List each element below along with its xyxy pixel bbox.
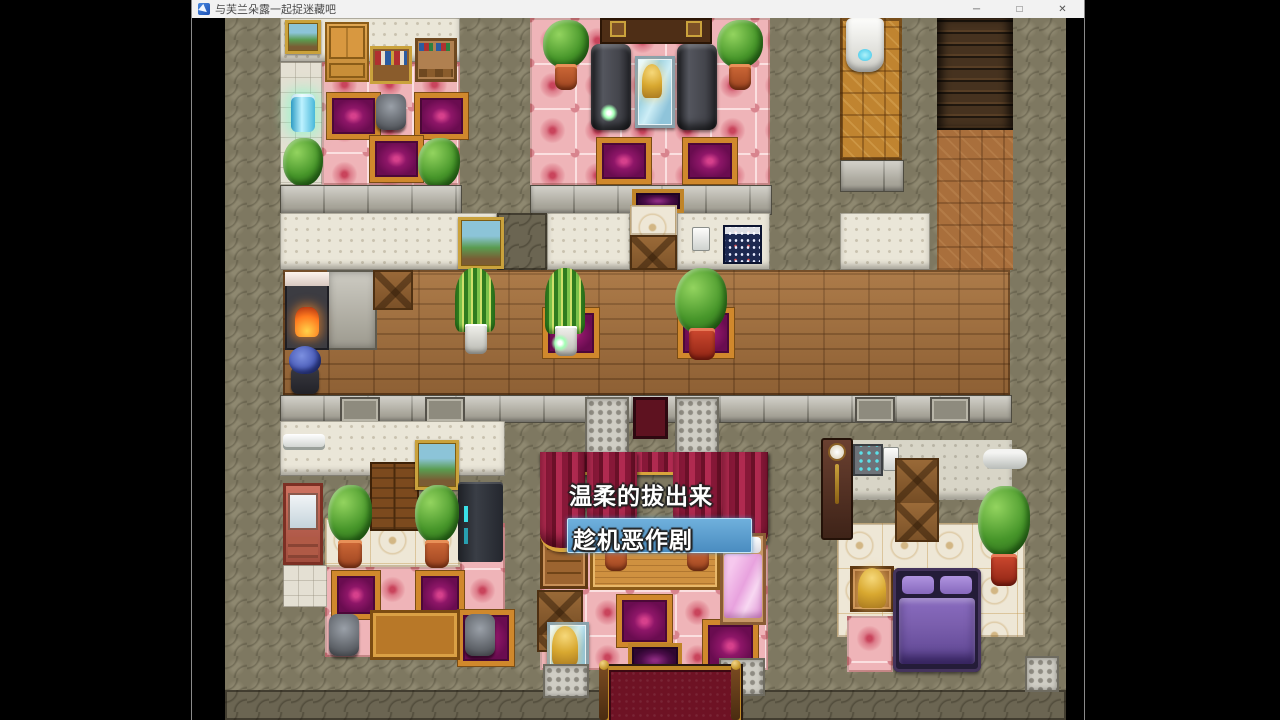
plant-pot (555, 64, 577, 90)
wall-sconce (855, 397, 895, 423)
wall-painting (415, 440, 459, 490)
close-button[interactable]: ✕ (1041, 0, 1084, 18)
potted-plant (328, 485, 372, 543)
corridor-wall (840, 213, 930, 270)
plant-pot (991, 554, 1017, 586)
air-conditioner (283, 434, 325, 450)
study-desk (370, 46, 412, 84)
china-cabinet (283, 483, 323, 565)
office-chair (329, 614, 359, 656)
snake-plant (455, 268, 495, 332)
window-titlebar[interactable]: 与芙兰朵露一起捉迷藏吧 ─ □ ✕ (192, 0, 1084, 18)
bed-blanket (724, 554, 762, 618)
crate-floor (895, 458, 939, 542)
carpet-tile (617, 595, 672, 647)
bed-pillow (902, 576, 934, 594)
wall-cap (840, 160, 904, 192)
window-title: 与芙兰朵露一起捉迷藏吧 (215, 1, 336, 17)
carpet-tile (370, 136, 423, 182)
wall-sconce (340, 397, 380, 423)
sparkle-effect (551, 334, 569, 352)
sparkle-effect (600, 104, 618, 122)
snake-plant (545, 268, 585, 334)
plant-pot (465, 324, 487, 354)
gold-table-lamp (858, 568, 886, 608)
player-character-hair (289, 346, 321, 374)
wall-cap (280, 185, 462, 215)
corridor-pillar (497, 213, 547, 270)
stair-post (731, 664, 740, 720)
white-duct (983, 449, 1027, 469)
game-viewport[interactable]: 温柔的拔出来 趁机恶作剧 (192, 18, 1084, 720)
carved-plaque (543, 664, 589, 698)
wooden-cabinet (325, 22, 369, 82)
wall-painting (285, 20, 321, 54)
sofa (677, 44, 717, 130)
office-chair (465, 614, 495, 656)
wall-calendar (723, 225, 762, 264)
plant-pot (425, 540, 449, 568)
choice-option-2[interactable]: 趁机恶作剧 (573, 521, 693, 555)
purple-bed (893, 568, 981, 672)
carpet-tile (327, 93, 380, 139)
palm-plant (675, 268, 727, 334)
stair-landing-floor (937, 130, 1013, 270)
toilet (846, 18, 884, 72)
potted-plant (415, 485, 459, 543)
staircase (937, 18, 1013, 130)
wall-panel (692, 227, 710, 251)
app-icon (198, 3, 210, 15)
corridor-painting (458, 217, 504, 269)
plant-pot (689, 328, 715, 360)
office-desk (370, 610, 460, 660)
carved-plaque (1025, 656, 1059, 692)
minimize-button[interactable]: ─ (955, 0, 998, 18)
chair (376, 94, 406, 130)
red-carpet-stairs (605, 666, 741, 720)
stair-post (599, 664, 608, 720)
wooden-door (370, 462, 419, 531)
potted-plant (418, 138, 460, 188)
corridor-wall (547, 213, 630, 270)
choice-option-1[interactable]: 温柔的拔出来 (569, 477, 713, 511)
game-map: 温柔的拔出来 趁机恶作剧 (225, 18, 1066, 720)
game-window: 与芙兰朵露一起捉迷藏吧 ─ □ ✕ (192, 0, 1084, 720)
carpet-tile (683, 138, 737, 184)
bed-pillow (940, 576, 972, 594)
carved-plaque (675, 397, 719, 456)
stage-lintel (633, 397, 668, 439)
maximize-button[interactable]: □ (998, 0, 1041, 18)
carved-plaque (585, 397, 629, 456)
refrigerator (458, 482, 503, 562)
carpet-tile (597, 138, 651, 184)
control-panel (853, 444, 883, 476)
bed-blanket (899, 598, 975, 664)
floor-tiles-gray (283, 565, 327, 607)
wall-sconce (930, 397, 970, 423)
gold-lamp-reflection (642, 64, 662, 98)
gold-floor-lamp (552, 626, 578, 666)
plant-pot (338, 540, 362, 568)
potted-tree (543, 20, 589, 68)
bookshelf (415, 38, 457, 82)
plant-pot (729, 64, 751, 90)
doorway-floor (630, 235, 677, 270)
stone-slab (327, 270, 377, 350)
floor-tiles-pink (847, 616, 893, 672)
potted-plant (283, 138, 323, 186)
wall-shelf (600, 18, 712, 44)
potted-tree (717, 20, 763, 68)
grandfather-clock (821, 438, 853, 540)
stove-fireplace (285, 272, 329, 350)
wall-sconce (425, 397, 465, 423)
carpet-tile (415, 93, 468, 139)
save-crystal (291, 94, 315, 132)
crate-floor (373, 270, 413, 310)
potted-plant (978, 486, 1030, 556)
doorway-tiles (630, 205, 677, 235)
